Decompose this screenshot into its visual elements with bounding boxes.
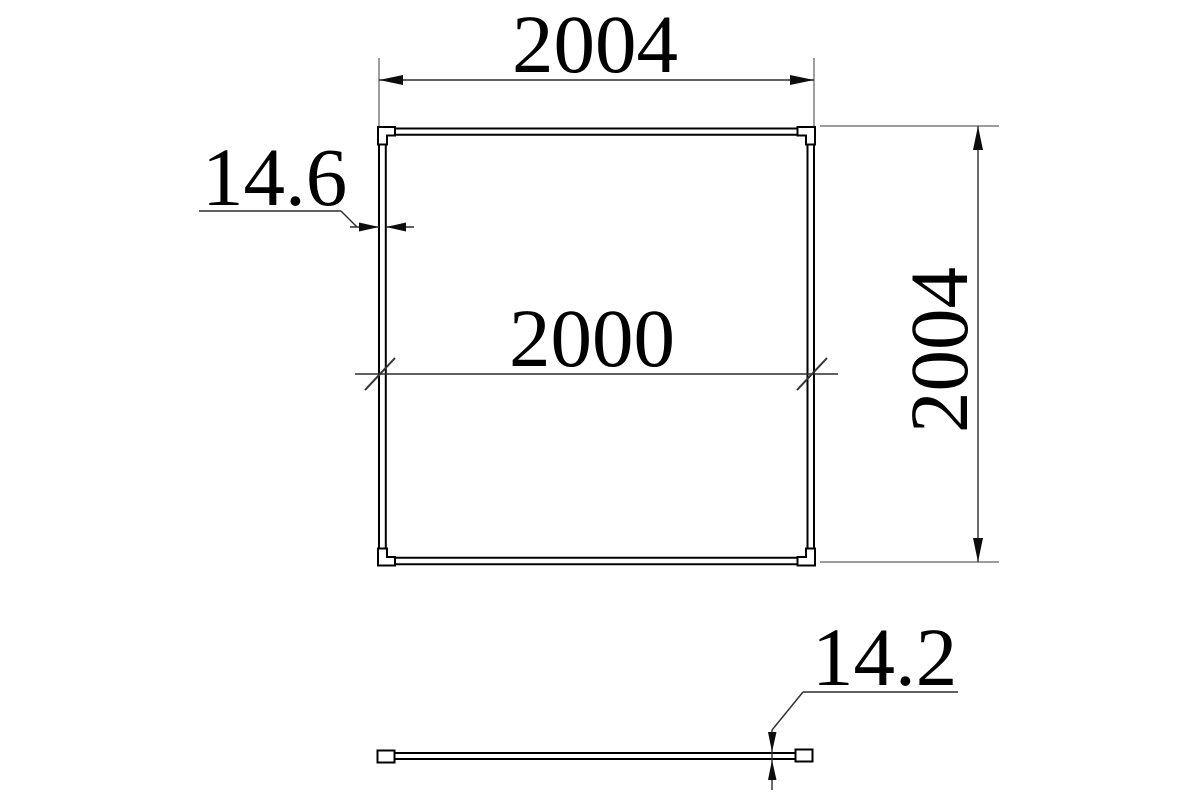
profile-thickness-value: 14.6 bbox=[202, 131, 347, 223]
corner-joint-bottom-left bbox=[378, 549, 395, 566]
arrowhead-right-icon bbox=[790, 75, 814, 85]
arrowhead-up-icon bbox=[973, 126, 983, 150]
panel-thickness-leader-line bbox=[772, 692, 803, 730]
corner-joint-top-right bbox=[798, 127, 816, 145]
dimension-outer-width: 2004 bbox=[379, 0, 814, 126]
side-end-cap-left bbox=[378, 751, 395, 763]
outer-width-dimension-value: 2004 bbox=[512, 0, 678, 90]
inner-width-dimension-value: 2000 bbox=[509, 292, 675, 384]
side-end-cap-right bbox=[796, 750, 813, 762]
dimension-profile-thickness: 14.6 bbox=[199, 131, 414, 232]
side-view bbox=[378, 750, 813, 763]
arrowhead-left-icon bbox=[379, 75, 403, 85]
corner-joint-bottom-right bbox=[798, 549, 816, 566]
arrowhead-converge-down-icon bbox=[768, 732, 777, 752]
dimension-panel-thickness: 14.2 bbox=[768, 611, 958, 790]
panel-thickness-value: 14.2 bbox=[812, 611, 957, 703]
technical-drawing-canvas: 2004 14.6 2000 2004 14.2 bbox=[0, 0, 1200, 800]
dimension-inner-width: 2000 bbox=[355, 292, 838, 390]
outer-height-dimension-value: 2004 bbox=[893, 267, 985, 433]
corner-joint-top-left bbox=[378, 127, 395, 145]
dimension-outer-height: 2004 bbox=[820, 126, 999, 562]
arrowhead-converge-left-icon bbox=[386, 223, 406, 232]
arrowhead-converge-up-icon bbox=[768, 760, 777, 780]
frame-dimension-drawing: 2004 14.6 2000 2004 14.2 bbox=[0, 0, 1200, 800]
arrowhead-down-icon bbox=[973, 538, 983, 562]
arrowhead-converge-right-icon bbox=[359, 223, 379, 232]
